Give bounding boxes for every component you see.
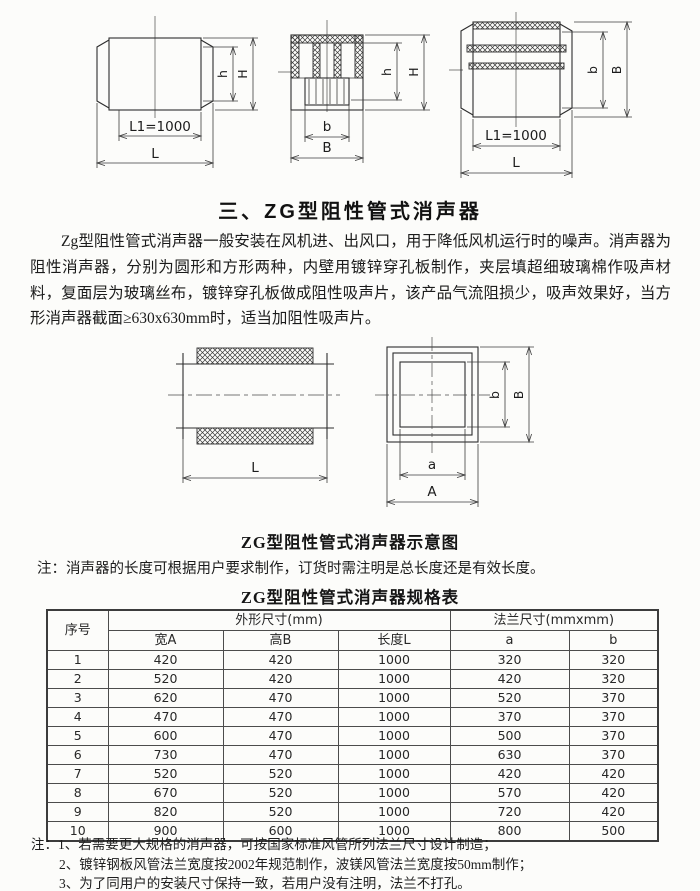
cell-fa: 570 <box>450 784 569 803</box>
cell-fa: 630 <box>450 746 569 765</box>
cell-fa: 500 <box>450 727 569 746</box>
dim-l: L <box>461 110 572 178</box>
col-header-flange-b: b <box>569 631 658 651</box>
middle-square <box>393 353 472 435</box>
cell-wa: 620 <box>108 689 223 708</box>
cell-fa: 420 <box>450 765 569 784</box>
cell-l: 1000 <box>338 727 450 746</box>
table-row: 14204201000320320 <box>47 651 658 670</box>
schematic-drawings: L b B <box>0 325 700 535</box>
dim-label-l1: L1=1000 <box>485 128 547 144</box>
dim-b-big: B <box>291 110 363 163</box>
cell-fb: 370 <box>569 689 658 708</box>
col-header-height-b: 高B <box>223 631 338 651</box>
cell-no: 3 <box>47 689 108 708</box>
spec-table: 序号 外形尺寸(mm) 法兰尺寸(mmxmm) 宽A 高B 长度L a b 14… <box>46 609 659 842</box>
dim-label-l: L <box>251 460 259 476</box>
col-header-flange-a: a <box>450 631 569 651</box>
dim-l: L <box>183 439 327 483</box>
dim-a-small: a <box>400 429 465 480</box>
cell-hb: 420 <box>223 670 338 689</box>
catalog-page: L1=1000 L h H <box>0 0 700 891</box>
cell-hb: 520 <box>223 784 338 803</box>
dim-label-l: L <box>512 155 520 171</box>
cell-wa: 730 <box>108 746 223 765</box>
cell-no: 2 <box>47 670 108 689</box>
cell-no: 4 <box>47 708 108 727</box>
footnote-line-3: 3、为了同用户的安装尺寸保持一致，若用户没有注明，法兰不打孔。 <box>59 874 532 891</box>
dim-label-bb: B <box>609 66 624 75</box>
dim-label-h: h <box>379 68 394 76</box>
table-row: 25204201000420320 <box>47 670 658 689</box>
cell-hb: 470 <box>223 727 338 746</box>
cell-fa: 320 <box>450 651 569 670</box>
cell-no: 6 <box>47 746 108 765</box>
footnote-line-1: 注：1、若需要更大规格的消声器，可按国家标准风管所列法兰尺寸设计制造； <box>31 835 532 855</box>
cell-hb: 520 <box>223 765 338 784</box>
hatched-band <box>467 45 566 52</box>
inner-square <box>400 362 465 427</box>
cell-fb: 370 <box>569 727 658 746</box>
diagram-caption: ZG型阻性管式消声器示意图 <box>0 529 700 553</box>
cell-fa: 370 <box>450 708 569 727</box>
cell-wa: 820 <box>108 803 223 822</box>
cell-fb: 320 <box>569 670 658 689</box>
cell-hb: 470 <box>223 746 338 765</box>
table-row: 44704701000370370 <box>47 708 658 727</box>
cell-hb: 420 <box>223 651 338 670</box>
left-flange <box>461 24 473 115</box>
table-row: 56004701000500370 <box>47 727 658 746</box>
cell-no: 5 <box>47 727 108 746</box>
muffler-body <box>473 22 560 117</box>
col-header-width-a: 宽A <box>108 631 223 651</box>
drawing-square-muffler-front: b B h H <box>278 20 430 163</box>
dim-label-b: b <box>323 119 332 135</box>
dim-label-bb: B <box>322 140 331 156</box>
col-header-index: 序号 <box>47 610 108 651</box>
cell-wa: 470 <box>108 708 223 727</box>
left-flange <box>97 40 109 108</box>
hatched-left-wall <box>291 35 299 78</box>
cell-l: 1000 <box>338 746 450 765</box>
col-group-flange: 法兰尺寸(mmxmm) <box>450 610 658 631</box>
dim-label-l: L <box>151 146 159 162</box>
cell-fb: 370 <box>569 746 658 765</box>
cell-fb: 420 <box>569 784 658 803</box>
right-flange <box>560 24 572 115</box>
cell-l: 1000 <box>338 689 450 708</box>
cell-fb: 420 <box>569 803 658 822</box>
dim-h-big: H <box>203 38 258 110</box>
dim-label-b: b <box>487 391 502 399</box>
right-flange <box>201 40 213 108</box>
cell-fa: 720 <box>450 803 569 822</box>
header-row-sub: 宽A 高B 长度L a b <box>47 631 658 651</box>
hatched-band <box>473 22 560 29</box>
header-row-groups: 序号 外形尺寸(mm) 法兰尺寸(mmxmm) <box>47 610 658 631</box>
cell-no: 7 <box>47 765 108 784</box>
dim-label-h: h <box>215 70 230 78</box>
hatched-lining-bottom <box>197 428 313 444</box>
cell-fb: 370 <box>569 708 658 727</box>
cell-no: 8 <box>47 784 108 803</box>
dim-label-bb: B <box>511 391 526 400</box>
col-header-length-l: 长度L <box>338 631 450 651</box>
section-title: 三、ZG型阻性管式消声器 <box>0 195 700 224</box>
footnotes: 注：1、若需要更大规格的消声器，可按国家标准风管所列法兰尺寸设计制造； 2、镀锌… <box>31 835 532 891</box>
table-row: 75205201000420420 <box>47 765 658 784</box>
table-title: ZG型阻性管式消声器规格表 <box>0 584 700 608</box>
cell-fb: 320 <box>569 651 658 670</box>
table-row: 98205201000720420 <box>47 803 658 822</box>
cell-l: 1000 <box>338 765 450 784</box>
intro-paragraph: Zg型阻性管式消声器一般安装在风机进、出风口，用于降低风机运行时的噪声。消声器为… <box>30 229 671 332</box>
cell-hb: 520 <box>223 803 338 822</box>
dim-b-small: b <box>562 32 608 108</box>
drawing-square-section: b B a A <box>375 337 534 507</box>
hatched-lining-top <box>197 348 313 364</box>
cell-l: 1000 <box>338 651 450 670</box>
table-row: 36204701000520370 <box>47 689 658 708</box>
outer-square <box>387 347 478 442</box>
cell-wa: 520 <box>108 765 223 784</box>
dim-label-b: b <box>585 66 600 74</box>
dim-label-hh: H <box>235 69 250 78</box>
cell-fa: 520 <box>450 689 569 708</box>
cell-l: 1000 <box>338 708 450 727</box>
cell-l: 1000 <box>338 670 450 689</box>
cell-wa: 520 <box>108 670 223 689</box>
dim-b-small: b <box>467 362 510 427</box>
hatched-band <box>469 63 564 69</box>
dim-label-a: a <box>428 457 436 473</box>
cell-hb: 470 <box>223 708 338 727</box>
cell-wa: 420 <box>108 651 223 670</box>
dim-l1: L1=1000 <box>473 119 560 151</box>
dim-label-hh: H <box>406 67 421 76</box>
drawing-round-muffler-side: L1=1000 L h H <box>97 16 258 168</box>
dim-h-small: h <box>203 47 238 101</box>
table-row: 67304701000630370 <box>47 746 658 765</box>
dim-label-l1: L1=1000 <box>129 119 191 135</box>
cell-fb: 500 <box>569 822 658 842</box>
dim-label-aa: A <box>427 484 437 500</box>
col-group-outline: 外形尺寸(mm) <box>108 610 450 631</box>
drawing-rect-muffler-side: b B L1=1000 L <box>449 12 632 178</box>
cell-no: 1 <box>47 651 108 670</box>
top-technical-drawings: L1=1000 L h H <box>0 0 700 200</box>
cell-wa: 600 <box>108 727 223 746</box>
cell-fb: 420 <box>569 765 658 784</box>
hatched-right-wall <box>355 35 363 78</box>
cell-hb: 470 <box>223 689 338 708</box>
cell-fa: 420 <box>450 670 569 689</box>
hatched-top-wall <box>291 35 363 43</box>
footnote-line-2: 2、镀锌钢板风管法兰宽度按2002年规范制作，波镁风管法兰宽度按50mm制作； <box>59 855 532 875</box>
splitter-baffle <box>334 43 341 78</box>
table-row: 86705201000570420 <box>47 784 658 803</box>
cell-l: 1000 <box>338 803 450 822</box>
cell-wa: 670 <box>108 784 223 803</box>
cell-no: 9 <box>47 803 108 822</box>
drawing-tube-section: L <box>168 348 340 483</box>
splitter-baffle <box>313 43 320 78</box>
diagram-note: 注：消声器的长度可根据用户要求制作，订货时需注明是总长度还是有效长度。 <box>37 557 545 578</box>
dim-l1: L1=1000 <box>119 110 201 141</box>
cell-l: 1000 <box>338 784 450 803</box>
